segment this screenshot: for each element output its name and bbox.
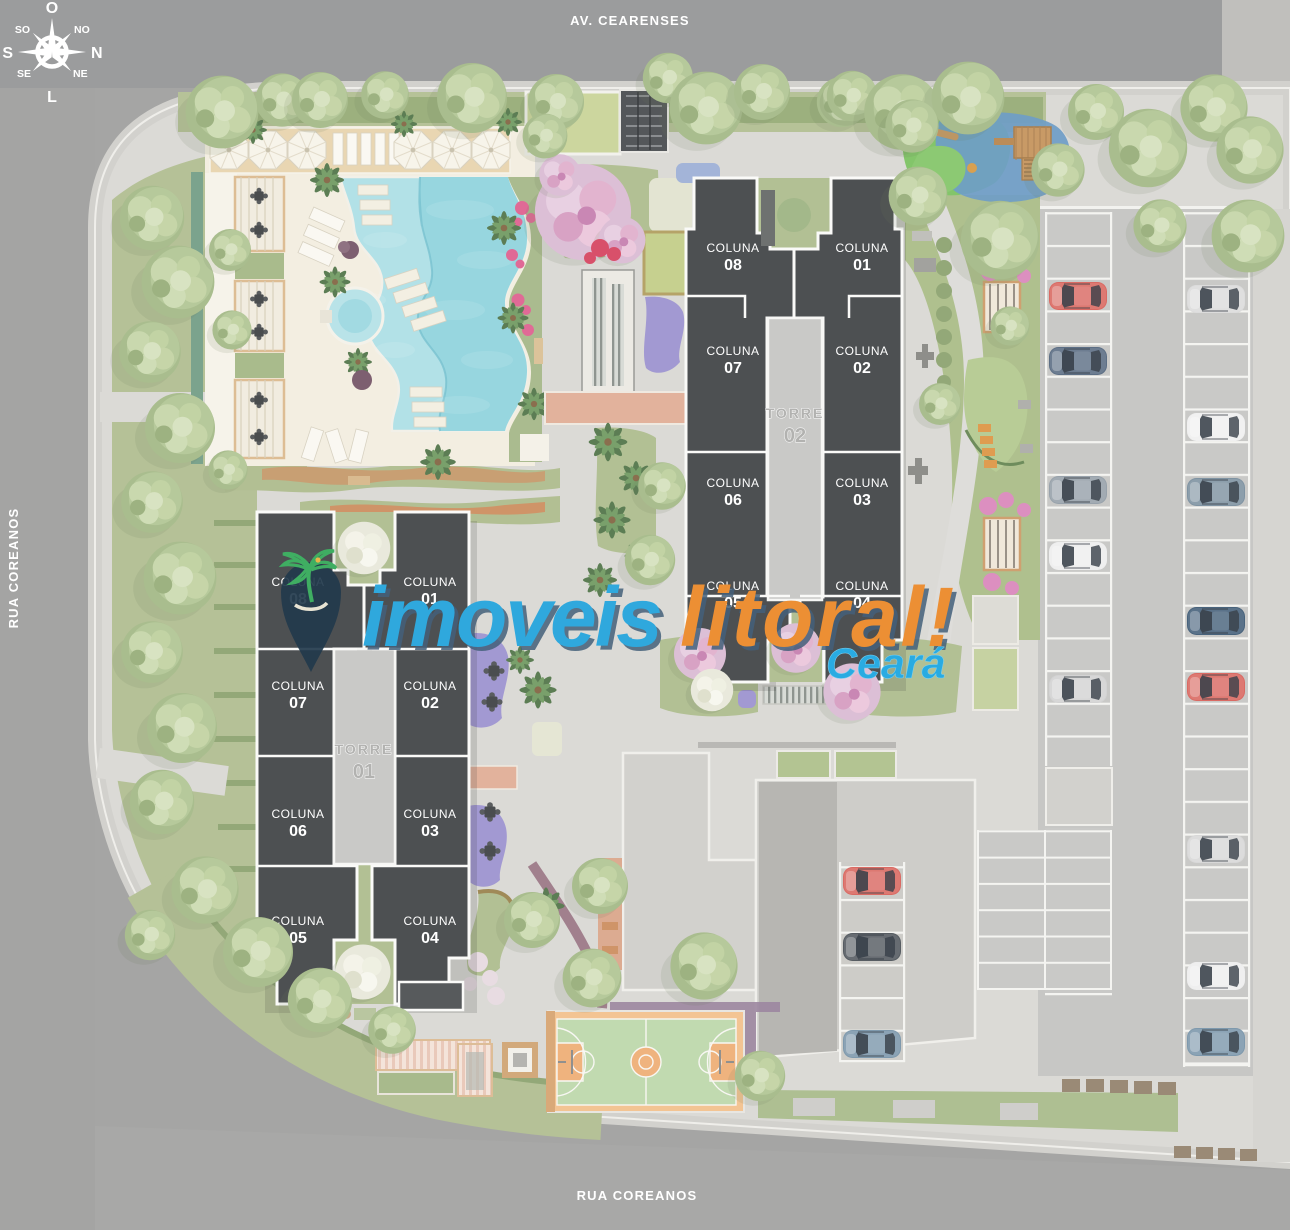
svg-text:04: 04 [421, 930, 439, 947]
svg-text:03: 03 [421, 823, 439, 840]
svg-text:07: 07 [724, 360, 742, 377]
svg-text:TORRE: TORRE [335, 741, 394, 757]
svg-text:RUA COREANOS: RUA COREANOS [577, 1188, 698, 1203]
svg-text:SO: SO [15, 24, 30, 36]
svg-text:TORRE: TORRE [766, 405, 825, 421]
svg-text:08: 08 [724, 257, 742, 274]
svg-text:01: 01 [353, 761, 375, 783]
svg-text:COLUNA: COLUNA [271, 679, 324, 693]
svg-text:COLUNA: COLUNA [403, 679, 456, 693]
svg-text:02: 02 [784, 425, 806, 447]
svg-text:COLUNA: COLUNA [835, 344, 888, 358]
svg-text:NO: NO [74, 24, 90, 36]
svg-text:07: 07 [289, 695, 307, 712]
svg-text:COLUNA: COLUNA [706, 344, 759, 358]
svg-text:02: 02 [421, 695, 439, 712]
svg-text:SE: SE [17, 68, 31, 80]
svg-text:COLUNA: COLUNA [835, 476, 888, 490]
svg-text:COLUNA: COLUNA [835, 241, 888, 255]
svg-text:COLUNA: COLUNA [706, 241, 759, 255]
svg-text:S: S [2, 45, 13, 62]
svg-text:02: 02 [853, 360, 871, 377]
svg-text:O: O [46, 0, 58, 17]
svg-text:06: 06 [289, 823, 307, 840]
svg-text:03: 03 [853, 492, 871, 509]
svg-text:COLUNA: COLUNA [271, 807, 324, 821]
svg-text:Ceará: Ceará [826, 640, 946, 688]
svg-text:imoveis: imoveis [362, 570, 661, 664]
svg-text:COLUNA: COLUNA [706, 476, 759, 490]
svg-text:COLUNA: COLUNA [403, 914, 456, 928]
svg-text:06: 06 [724, 492, 742, 509]
svg-text:N: N [91, 45, 103, 62]
svg-text:COLUNA: COLUNA [403, 807, 456, 821]
svg-text:NE: NE [73, 68, 88, 80]
svg-text:01: 01 [853, 257, 871, 274]
svg-text:AV. CEARENSES: AV. CEARENSES [570, 13, 690, 28]
svg-text:L: L [47, 89, 57, 106]
svg-text:RUA COREANOS: RUA COREANOS [6, 508, 21, 629]
